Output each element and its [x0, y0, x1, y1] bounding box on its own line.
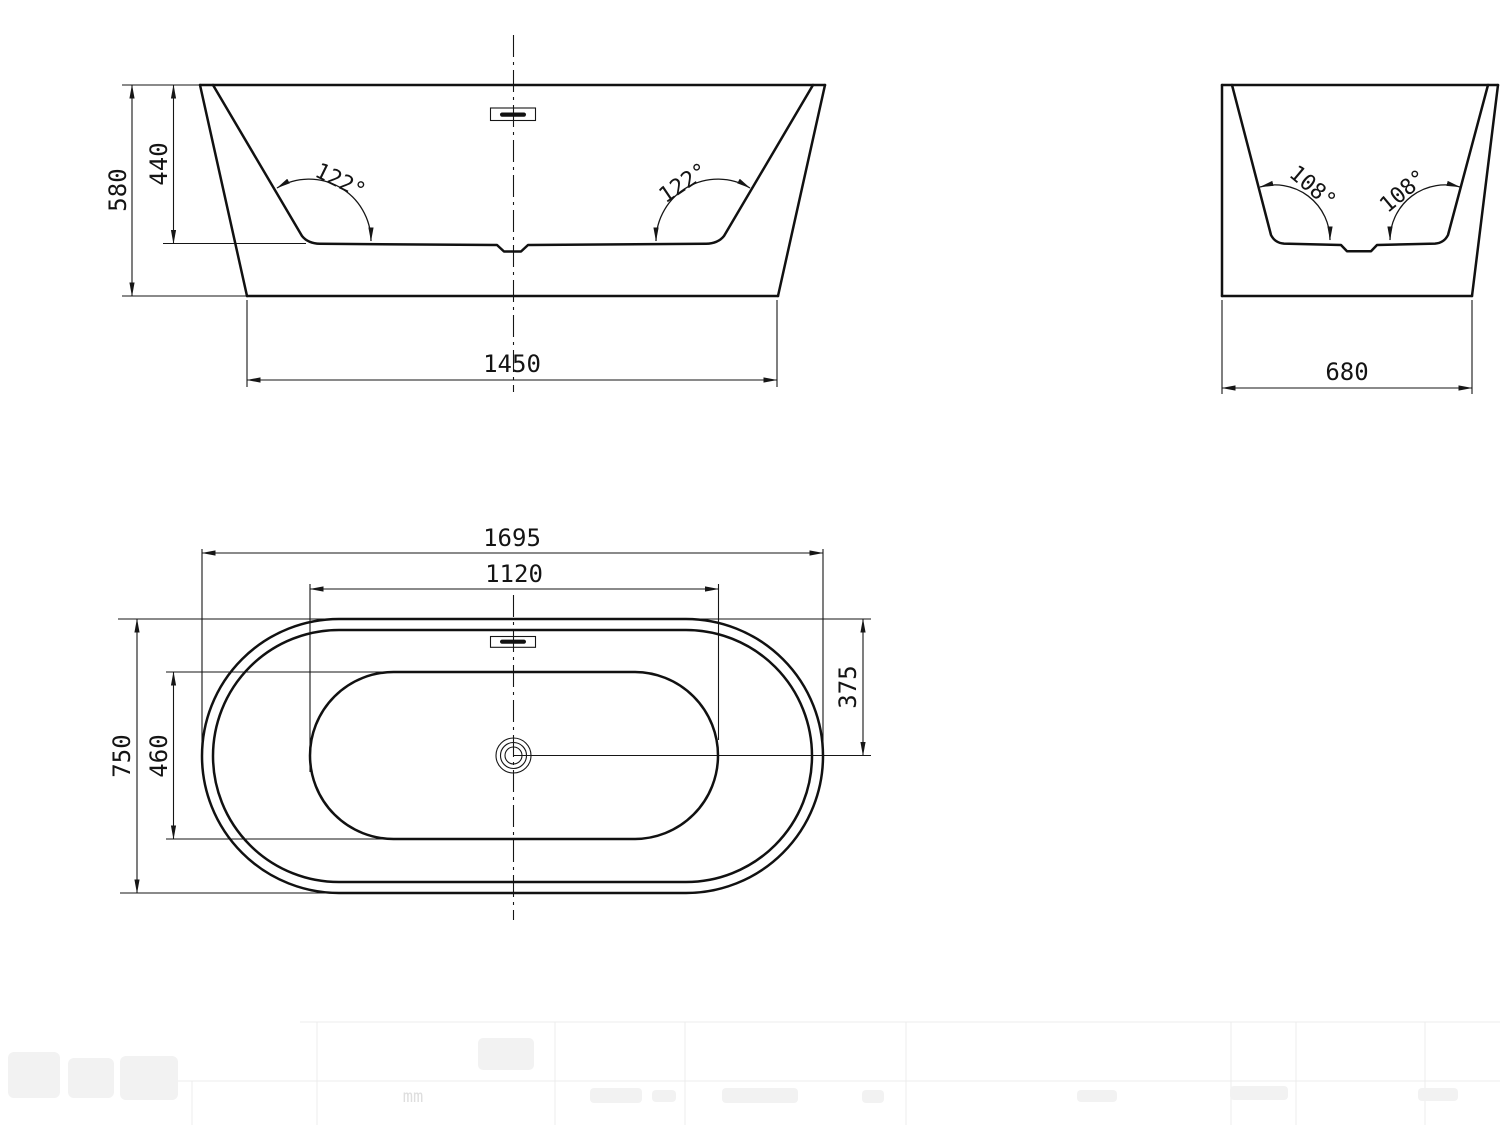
dim-label-inner-width: 460	[145, 734, 173, 777]
angle-label-side-right: 108°	[1375, 165, 1432, 218]
bathtub-technical-drawing: 122° 122° 580 440 1450 108° 108° 680	[0, 0, 1500, 1125]
dim-label-inner-depth: 440	[145, 142, 173, 185]
faint-text-smudge	[862, 1090, 884, 1103]
end-elevation-view: 108° 108° 680	[1222, 85, 1498, 394]
units-label: mm	[403, 1087, 423, 1107]
faint-logo-smudge	[120, 1056, 178, 1100]
tub-front-wall	[1472, 85, 1498, 296]
title-block: mm	[8, 1022, 1500, 1125]
dim-label-inner-length: 1120	[485, 560, 543, 588]
angle-label-front-left: 122°	[311, 159, 370, 205]
bathtub-technical-drawing-page: 122° 122° 580 440 1450 108° 108° 680	[0, 0, 1500, 1125]
dim-label-side-base-width: 680	[1325, 358, 1368, 386]
faint-logo-smudge	[68, 1058, 114, 1098]
dim-label-overall-height: 580	[104, 168, 132, 211]
tub-inner-basin-profile	[1232, 85, 1488, 251]
dim-label-base-width: 1450	[483, 350, 541, 378]
front-elevation-view: 122° 122° 580 440 1450	[104, 35, 825, 392]
faint-text-smudge	[652, 1090, 676, 1102]
tub-outer-wall-left	[200, 85, 247, 296]
faint-text-smudge	[722, 1088, 798, 1103]
overflow-slot-icon	[500, 640, 526, 644]
faint-text-smudge	[1230, 1086, 1288, 1100]
plan-view: 1695 1120 750 460 375	[108, 524, 871, 920]
dim-label-overall-width: 750	[108, 734, 136, 777]
faint-text-smudge	[1077, 1090, 1117, 1102]
dim-label-overall-length: 1695	[483, 524, 541, 552]
faint-logo-smudge	[8, 1052, 60, 1098]
angle-label-front-right: 122°	[655, 158, 713, 208]
dim-label-drain-center-offset: 375	[834, 665, 862, 708]
overflow-slot-icon	[500, 113, 526, 117]
tub-outer-wall-right	[778, 85, 825, 296]
faint-text-smudge	[1418, 1088, 1458, 1101]
faint-text-smudge	[478, 1038, 534, 1070]
faint-text-smudge	[590, 1088, 642, 1103]
